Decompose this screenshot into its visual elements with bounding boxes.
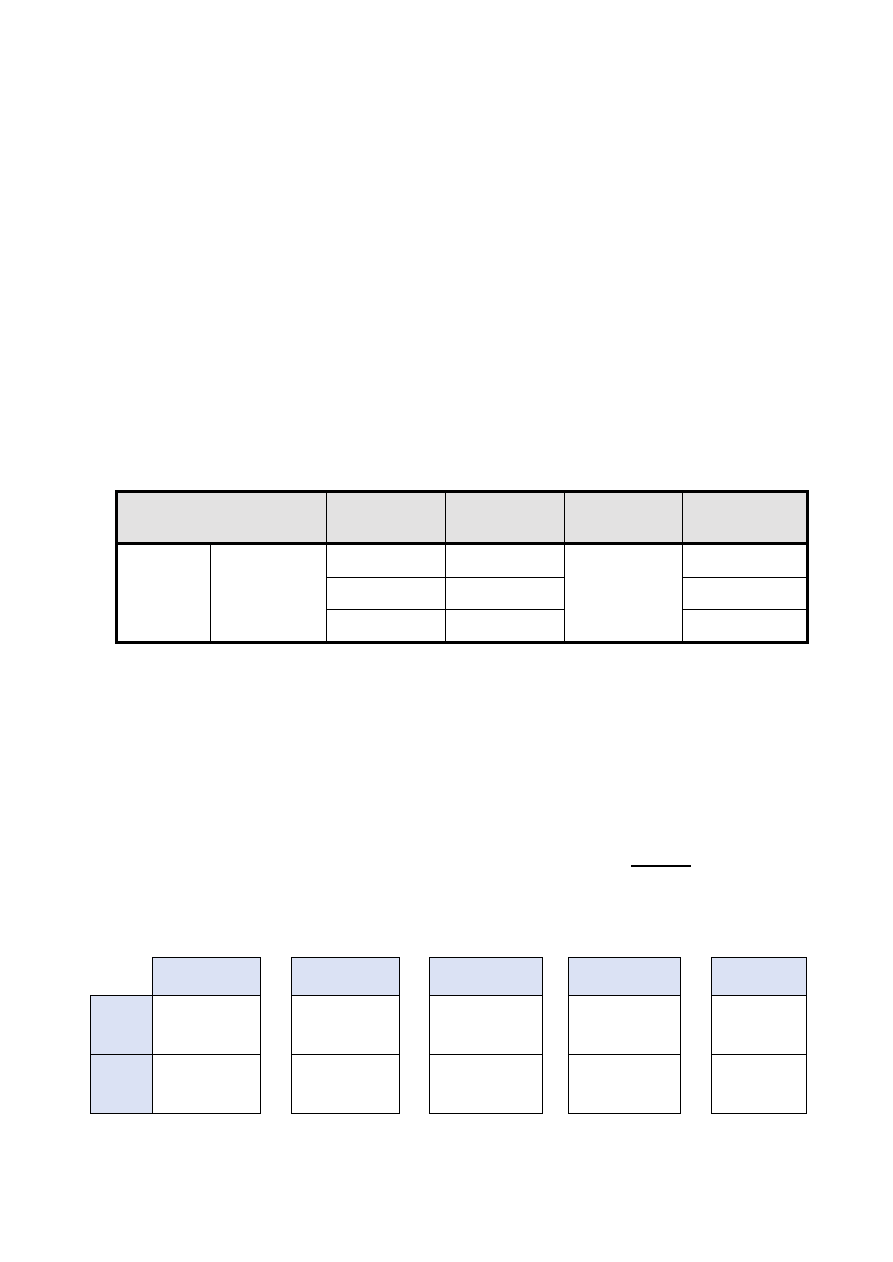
small-table-4-row-1 <box>569 996 681 1055</box>
main-table-row-1 <box>117 544 808 578</box>
small-table-1-header-row <box>91 958 261 996</box>
small-table-5-header-cell <box>712 958 807 996</box>
small-table-5-cell-1 <box>712 996 807 1055</box>
small-table-2-row-2 <box>292 1055 400 1114</box>
small-table-4-cell-1 <box>569 996 681 1055</box>
small-table-4-header-row <box>569 958 681 996</box>
small-table-5-cell-2 <box>712 1055 807 1114</box>
small-table-4 <box>568 957 681 1114</box>
document-page <box>0 0 893 1262</box>
main-table-col4-row3-cell <box>446 610 565 643</box>
small-table-3-header-row <box>430 958 543 996</box>
main-table-header-cell-5 <box>683 492 808 544</box>
small-table-3-cell-2 <box>430 1055 543 1114</box>
small-table-2-cell-1 <box>292 996 400 1055</box>
small-table-1-label-2 <box>91 1055 153 1114</box>
main-table-header-row <box>117 492 808 544</box>
small-table-3-row-1 <box>430 996 543 1055</box>
main-table-header-cell-2 <box>327 492 446 544</box>
main-table-col6-row3-cell <box>683 610 808 643</box>
main-table-col5-cell <box>565 544 683 643</box>
small-table-2-cell-2 <box>292 1055 400 1114</box>
small-table-1-row-1 <box>91 996 261 1055</box>
small-table-4-row-2 <box>569 1055 681 1114</box>
blank-underline <box>631 865 691 867</box>
small-table-2-header-cell <box>292 958 400 996</box>
small-table-3-row-2 <box>430 1055 543 1114</box>
small-table-1 <box>90 957 261 1114</box>
small-table-5-row-2 <box>712 1055 807 1114</box>
small-table-3 <box>429 957 543 1114</box>
small-table-1-corner-cell <box>91 958 153 996</box>
main-table-col3-row2-cell <box>327 578 446 610</box>
small-table-5-header-row <box>712 958 807 996</box>
main-table-left-col2-cell <box>211 544 327 643</box>
small-table-5-row-1 <box>712 996 807 1055</box>
small-table-2-header-row <box>292 958 400 996</box>
main-table <box>115 490 809 644</box>
small-table-1-row-2 <box>91 1055 261 1114</box>
small-table-3-cell-1 <box>430 996 543 1055</box>
small-table-1-cell-2 <box>153 1055 261 1114</box>
main-table-col4-row2-cell <box>446 578 565 610</box>
small-table-2-row-1 <box>292 996 400 1055</box>
small-table-4-cell-2 <box>569 1055 681 1114</box>
small-table-5 <box>711 957 807 1114</box>
main-table-col3-row3-cell <box>327 610 446 643</box>
main-table-header-cell-4 <box>565 492 683 544</box>
main-table-col4-row1-cell <box>446 544 565 578</box>
main-table-col6-row1-cell <box>683 544 808 578</box>
small-table-3-header-cell <box>430 958 543 996</box>
small-table-1-cell-1 <box>153 996 261 1055</box>
main-table-left-col1-cell <box>117 544 211 643</box>
small-table-4-header-cell <box>569 958 681 996</box>
small-table-1-header-cell <box>153 958 261 996</box>
main-table-col6-row2-cell <box>683 578 808 610</box>
small-table-1-label-1 <box>91 996 153 1055</box>
main-table-header-cell-3 <box>446 492 565 544</box>
main-table-col3-row1-cell <box>327 544 446 578</box>
main-table-header-cell-1 <box>117 492 327 544</box>
small-table-2 <box>291 957 400 1114</box>
